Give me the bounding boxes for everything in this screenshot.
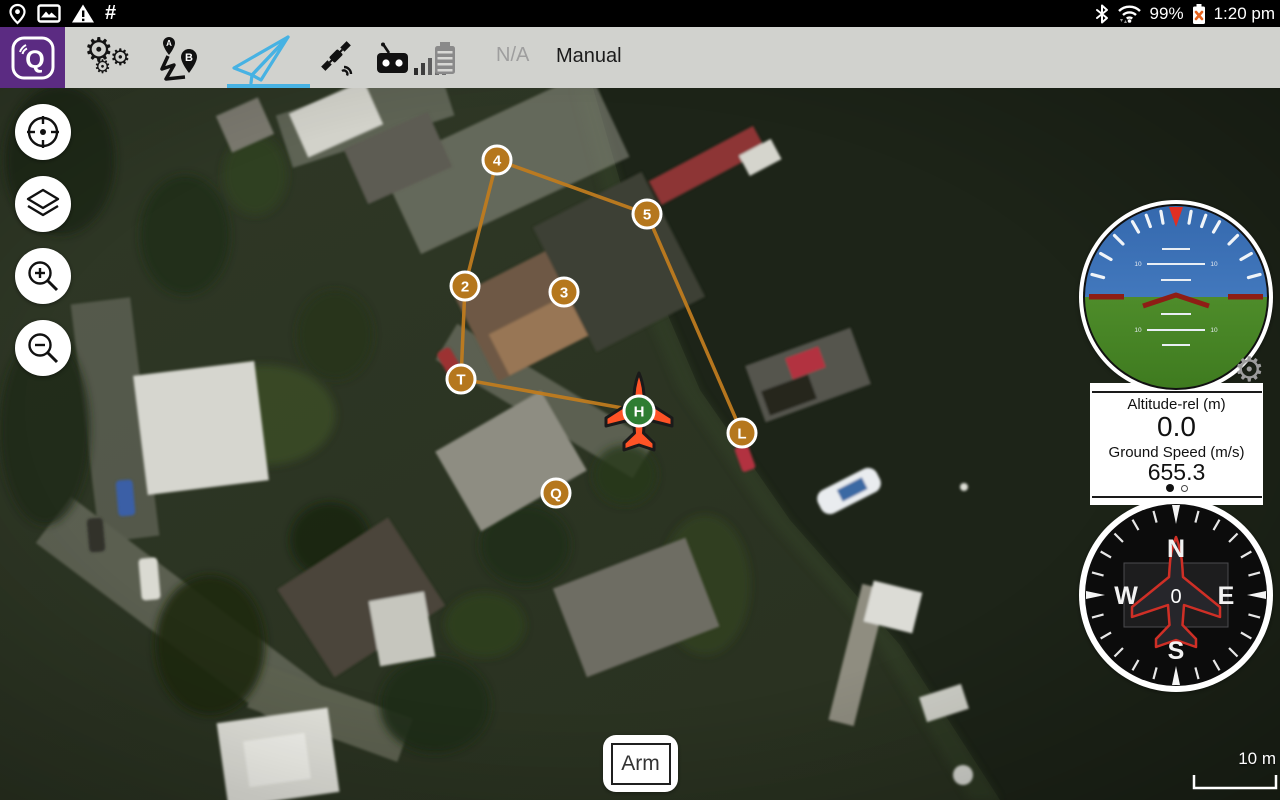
flight-mode-text[interactable]: Manual bbox=[556, 45, 622, 68]
svg-text:B: B bbox=[185, 52, 193, 64]
battery-unknown-icon bbox=[1192, 3, 1206, 25]
mission-path-segment bbox=[647, 214, 742, 433]
rc-controller-icon bbox=[374, 42, 412, 76]
warning-icon bbox=[71, 3, 95, 24]
svg-text:10: 10 bbox=[1210, 261, 1218, 268]
center-map-button[interactable] bbox=[15, 104, 71, 160]
active-tab-underline bbox=[227, 84, 310, 88]
crosshair-icon bbox=[23, 112, 63, 152]
waypoint-marker[interactable]: T bbox=[447, 365, 475, 393]
location-pin-icon bbox=[8, 3, 27, 25]
paper-plane-icon bbox=[228, 33, 294, 85]
gear-icon: ⚙ bbox=[110, 44, 131, 71]
wifi-icon bbox=[1117, 3, 1142, 24]
plan-route-icon: A B bbox=[158, 36, 202, 84]
layers-icon bbox=[23, 184, 63, 224]
svg-text:S: S bbox=[1168, 637, 1185, 665]
app-screen: 4523TLQH # bbox=[0, 0, 1280, 800]
hash-icon: # bbox=[105, 2, 116, 25]
waypoint-marker[interactable]: 3 bbox=[550, 278, 578, 306]
home-marker[interactable]: H bbox=[624, 396, 654, 426]
zoom-in-icon bbox=[23, 256, 63, 296]
svg-text:10: 10 bbox=[1210, 327, 1218, 334]
mission-path-segment bbox=[461, 379, 639, 411]
zoom-out-button[interactable] bbox=[15, 320, 71, 376]
rc-button[interactable] bbox=[374, 42, 412, 81]
svg-text:W: W bbox=[1114, 582, 1138, 610]
waypoint-marker[interactable]: 4 bbox=[483, 146, 511, 174]
mission-path-segment bbox=[465, 160, 497, 286]
svg-text:10: 10 bbox=[1134, 261, 1142, 268]
waypoint-label: Q bbox=[550, 486, 562, 503]
bluetooth-icon bbox=[1095, 4, 1109, 24]
battery-status-text: N/A bbox=[496, 44, 529, 67]
page-dot-active[interactable] bbox=[1166, 484, 1174, 492]
waypoint-label: 4 bbox=[493, 153, 502, 170]
values-page-indicator[interactable] bbox=[1090, 484, 1263, 492]
instrument-settings-gear-icon[interactable]: ⚙ bbox=[1234, 350, 1264, 390]
waypoint-marker[interactable]: 2 bbox=[451, 272, 479, 300]
waypoint-marker[interactable]: Q bbox=[542, 479, 570, 507]
vehicle-battery-indicator[interactable] bbox=[433, 41, 457, 80]
map-scale-label: 10 m bbox=[1176, 749, 1276, 769]
waypoint-label: L bbox=[737, 426, 746, 443]
app-toolbar: Q ⚙ ⚙ ⚙ A B bbox=[0, 27, 1280, 88]
compass-heading-value: 0 bbox=[1170, 586, 1181, 608]
clock: 1:20 pm bbox=[1214, 4, 1275, 24]
waypoint-marker[interactable]: 5 bbox=[633, 200, 661, 228]
zoom-out-icon bbox=[23, 328, 63, 368]
mission-path-segment bbox=[497, 160, 647, 214]
zoom-in-button[interactable] bbox=[15, 248, 71, 304]
android-status-bar: # 99% 1:20 pm bbox=[0, 0, 1280, 27]
svg-text:Q: Q bbox=[25, 46, 44, 74]
map-layers-button[interactable] bbox=[15, 176, 71, 232]
page-dot-inactive[interactable] bbox=[1181, 485, 1188, 492]
waypoint-label: 2 bbox=[461, 279, 469, 296]
waypoint-label: T bbox=[456, 372, 465, 389]
gear-icon: ⚙ bbox=[94, 56, 111, 79]
svg-text:E: E bbox=[1218, 582, 1235, 610]
arm-button[interactable]: Arm bbox=[603, 735, 678, 792]
satellite-button[interactable] bbox=[318, 40, 358, 85]
mission-markers: 4523TLQH bbox=[447, 146, 756, 507]
satellite-icon bbox=[318, 40, 358, 80]
battery-percent: 99% bbox=[1150, 4, 1184, 24]
screenshot-icon bbox=[37, 4, 61, 23]
arm-button-label: Arm bbox=[611, 743, 671, 785]
map-scale-bar bbox=[1190, 772, 1280, 792]
panel-divider bbox=[1092, 391, 1262, 393]
svg-text:10: 10 bbox=[1134, 327, 1142, 334]
svg-text:N: N bbox=[1167, 535, 1185, 563]
battery-icon bbox=[433, 41, 457, 75]
settings-button[interactable]: ⚙ ⚙ ⚙ bbox=[82, 30, 140, 86]
waypoint-marker[interactable]: L bbox=[728, 419, 756, 447]
compass: N E S W 0 bbox=[1079, 498, 1273, 692]
svg-text:A: A bbox=[166, 39, 172, 48]
qgroundcontrol-logo[interactable]: Q bbox=[0, 27, 65, 88]
mission-path bbox=[461, 160, 742, 433]
waypoint-label: 3 bbox=[560, 285, 568, 302]
altitude-value: 0.0 bbox=[1090, 411, 1263, 443]
waypoint-label: H bbox=[634, 404, 645, 421]
plan-button[interactable]: A B bbox=[158, 36, 202, 89]
panel-divider bbox=[1092, 496, 1262, 498]
ground-speed-value: 655.3 bbox=[1090, 459, 1263, 486]
fly-button[interactable] bbox=[228, 33, 294, 90]
waypoint-label: 5 bbox=[643, 207, 651, 224]
